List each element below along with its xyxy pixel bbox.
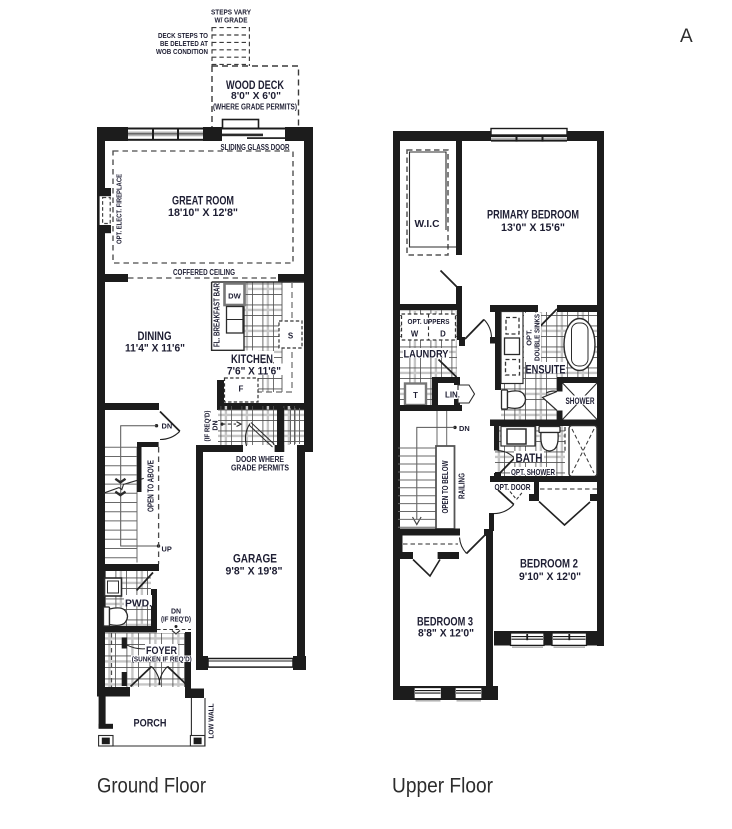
svg-text:SLIDING GLASS DOOR: SLIDING GLASS DOOR — [221, 142, 291, 152]
svg-text:7'6" X 11'6": 7'6" X 11'6" — [227, 366, 281, 378]
svg-text:LIN.: LIN. — [445, 390, 460, 399]
svg-text:DOUBLE SINKS: DOUBLE SINKS — [533, 314, 542, 361]
svg-text:9'8" X 19'8": 9'8" X 19'8" — [226, 566, 283, 578]
svg-text:LOW WALL: LOW WALL — [207, 703, 216, 738]
svg-text:DW: DW — [228, 292, 241, 301]
svg-text:(IF REQ'D): (IF REQ'D) — [161, 616, 191, 623]
svg-text:PRIMARY BEDROOM: PRIMARY BEDROOM — [487, 210, 579, 222]
svg-text:GREAT ROOM: GREAT ROOM — [172, 196, 234, 208]
svg-text:BEDROOM 2: BEDROOM 2 — [520, 559, 578, 571]
svg-text:F: F — [239, 385, 244, 394]
svg-text:S: S — [288, 332, 294, 341]
svg-text:DN: DN — [213, 420, 220, 430]
svg-text:BATH: BATH — [516, 453, 543, 465]
svg-text:13'0" X 15'6": 13'0" X 15'6" — [501, 222, 565, 234]
svg-text:RAILING: RAILING — [458, 473, 467, 499]
svg-text:PWD.: PWD. — [125, 599, 152, 610]
svg-text:UP: UP — [162, 545, 172, 554]
svg-text:Upper Floor: Upper Floor — [392, 774, 493, 798]
svg-text:SHOWER: SHOWER — [566, 396, 595, 406]
svg-text:DINING: DINING — [138, 331, 172, 343]
svg-text:18'10" X 12'8": 18'10" X 12'8" — [168, 207, 238, 219]
svg-text:A: A — [680, 26, 693, 47]
svg-text:FL. BREAKFAST BAR: FL. BREAKFAST BAR — [213, 283, 222, 347]
svg-text:Ground Floor: Ground Floor — [97, 774, 206, 798]
svg-text:(IF REQ'D): (IF REQ'D) — [205, 411, 212, 442]
svg-text:OPT. SHOWER: OPT. SHOWER — [511, 468, 555, 477]
svg-text:DN: DN — [171, 609, 181, 616]
svg-text:DN: DN — [162, 422, 173, 431]
svg-text:OPT. UPPERS: OPT. UPPERS — [408, 317, 450, 326]
svg-text:PORCH: PORCH — [134, 718, 167, 730]
svg-text:OPEN TO BELOW: OPEN TO BELOW — [441, 460, 450, 514]
svg-text:OPT. ELECT. FIREPLACE: OPT. ELECT. FIREPLACE — [115, 174, 124, 244]
svg-text:OPEN TO ABOVE: OPEN TO ABOVE — [147, 460, 156, 512]
svg-text:DN: DN — [459, 424, 470, 433]
svg-text:W: W — [411, 330, 419, 339]
svg-text:8'8" X 12'0": 8'8" X 12'0" — [418, 627, 474, 639]
svg-text:T: T — [413, 391, 418, 400]
svg-text:W/ GRADE: W/ GRADE — [215, 16, 248, 25]
svg-text:9'10" X 12'0": 9'10" X 12'0" — [519, 571, 581, 583]
svg-text:GARAGE: GARAGE — [233, 554, 277, 566]
svg-text:ENSUITE: ENSUITE — [526, 365, 566, 377]
svg-text:GRADE PERMITS: GRADE PERMITS — [231, 463, 289, 473]
svg-text:KITCHEN: KITCHEN — [231, 354, 273, 366]
svg-text:W.I.C: W.I.C — [415, 218, 440, 230]
svg-text:(SUNKEN IF REQ'D): (SUNKEN IF REQ'D) — [132, 655, 193, 664]
svg-text:WOB CONDITION: WOB CONDITION — [156, 47, 208, 56]
svg-text:COFFERED CEILING: COFFERED CEILING — [173, 267, 235, 277]
svg-text:D: D — [440, 330, 446, 339]
svg-text:11'4" X 11'6": 11'4" X 11'6" — [125, 343, 185, 355]
svg-text:(WHERE GRADE PERMITS): (WHERE GRADE PERMITS) — [213, 102, 297, 112]
svg-text:LAUNDRY: LAUNDRY — [404, 349, 450, 361]
svg-text:8'0" X 6'0": 8'0" X 6'0" — [231, 90, 281, 102]
